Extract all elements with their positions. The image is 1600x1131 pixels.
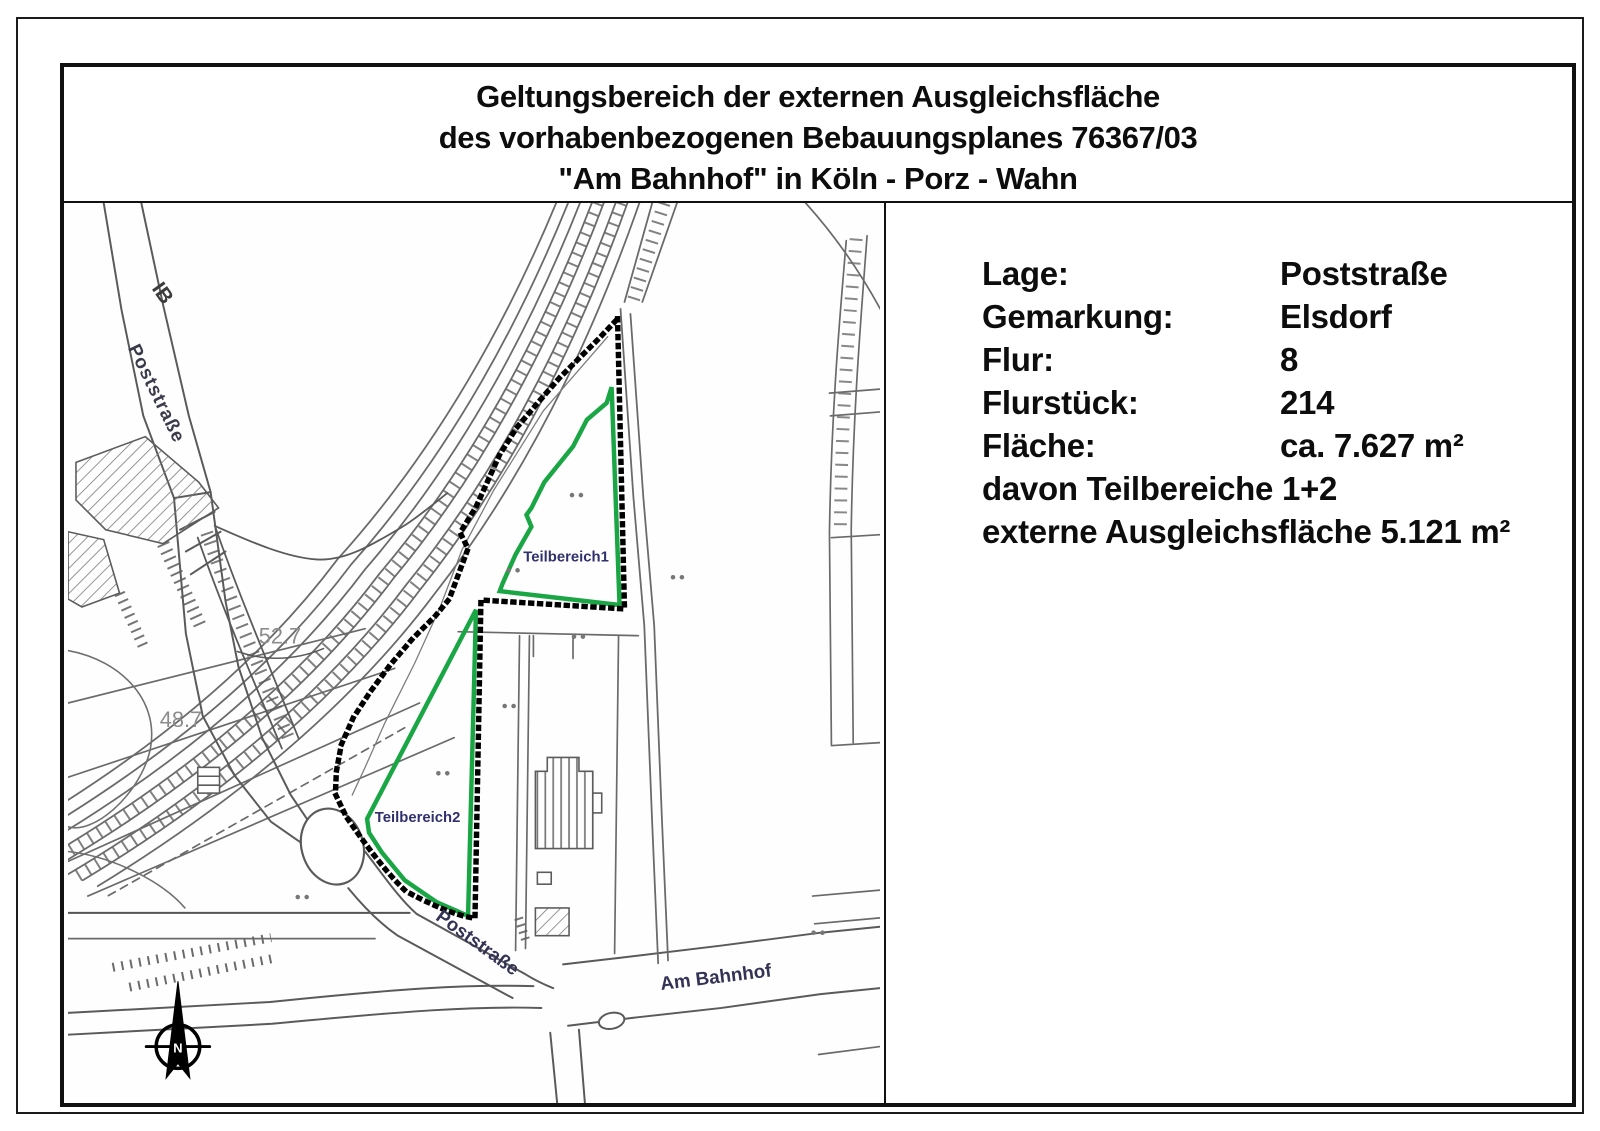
info-row-gemarkung: Gemarkung:Elsdorf	[886, 295, 1572, 338]
info-row-flurstueck: Flurstück:214	[886, 381, 1572, 424]
title-block: Geltungsbereich der externen Ausgleichsf…	[64, 67, 1572, 203]
area-label-teilbereich1: Teilbereich1	[523, 549, 609, 565]
road-am-bahnhof	[550, 927, 880, 1103]
info-row-flaeche: Fläche:ca. 7.627 m²	[886, 424, 1572, 467]
street-label-ib: IB	[147, 278, 178, 308]
site-plan-map: IB Poststraße 52.7 48.7 Teilbereich1 Tei…	[64, 203, 884, 1103]
info-value-flaeche: ca. 7.627 m²	[1280, 424, 1464, 467]
street-label-poststrasse-lower: Poststraße	[432, 905, 523, 979]
info-label-flaeche: Fläche:	[982, 424, 1280, 467]
content-area: IB Poststraße 52.7 48.7 Teilbereich1 Tei…	[64, 203, 1572, 1103]
title-line-3: "Am Bahnhof" in Köln - Porz - Wahn	[64, 158, 1572, 199]
title-line-2: des vorhabenbezogenen Bebauungsplanes 76…	[64, 117, 1572, 158]
info-panel: Lage:Poststraße Gemarkung:Elsdorf Flur:8…	[886, 203, 1572, 1103]
area-label-teilbereich2: Teilbereich2	[375, 810, 461, 826]
traffic-island	[597, 1010, 625, 1031]
building-hatched-large	[535, 757, 592, 848]
road-junction-south-left	[550, 1033, 557, 1103]
info-label-flur: Flur:	[982, 338, 1280, 381]
road-junction-south-right	[579, 1030, 585, 1103]
map-pane: IB Poststraße 52.7 48.7 Teilbereich1 Tei…	[64, 203, 886, 1103]
buildings-centre	[519, 757, 602, 939]
street-label-am-bahnhof: Am Bahnhof	[659, 959, 773, 994]
compass-north-letter: N	[173, 1041, 182, 1056]
info-value-gemarkung: Elsdorf	[1280, 295, 1392, 338]
building-small-hatched	[535, 908, 569, 936]
info-value-lage: Poststraße	[1280, 252, 1448, 295]
info-extra-ausgleichsflaeche: externe Ausgleichsfläche 5.121 m²	[982, 510, 1572, 553]
building-hatched-west-1	[76, 437, 219, 544]
info-value-flurstueck: 214	[1280, 381, 1334, 424]
info-label-flurstueck: Flurstück:	[982, 381, 1280, 424]
document-inner-frame: Geltungsbereich der externen Ausgleichsf…	[60, 63, 1576, 1107]
street-label-poststrasse-upper: Poststraße	[124, 341, 190, 446]
info-label-lage: Lage:	[982, 252, 1280, 295]
document-outer-border: Geltungsbereich der externen Ausgleichsf…	[16, 17, 1584, 1114]
info-row-lage: Lage:Poststraße	[886, 252, 1572, 295]
info-value-flur: 8	[1280, 338, 1298, 381]
info-extra-teilbereiche: davon Teilbereiche 1+2	[982, 467, 1572, 510]
elevation-52-7: 52.7	[259, 624, 301, 649]
building-small-west	[198, 767, 220, 793]
building-hatched-west-2	[68, 532, 119, 607]
elevation-48-7: 48.7	[160, 707, 202, 732]
info-label-gemarkung: Gemarkung:	[982, 295, 1280, 338]
road-west-branch	[68, 986, 541, 1035]
info-row-flur: Flur:8	[886, 338, 1572, 381]
title-line-1: Geltungsbereich der externen Ausgleichsf…	[64, 76, 1572, 117]
